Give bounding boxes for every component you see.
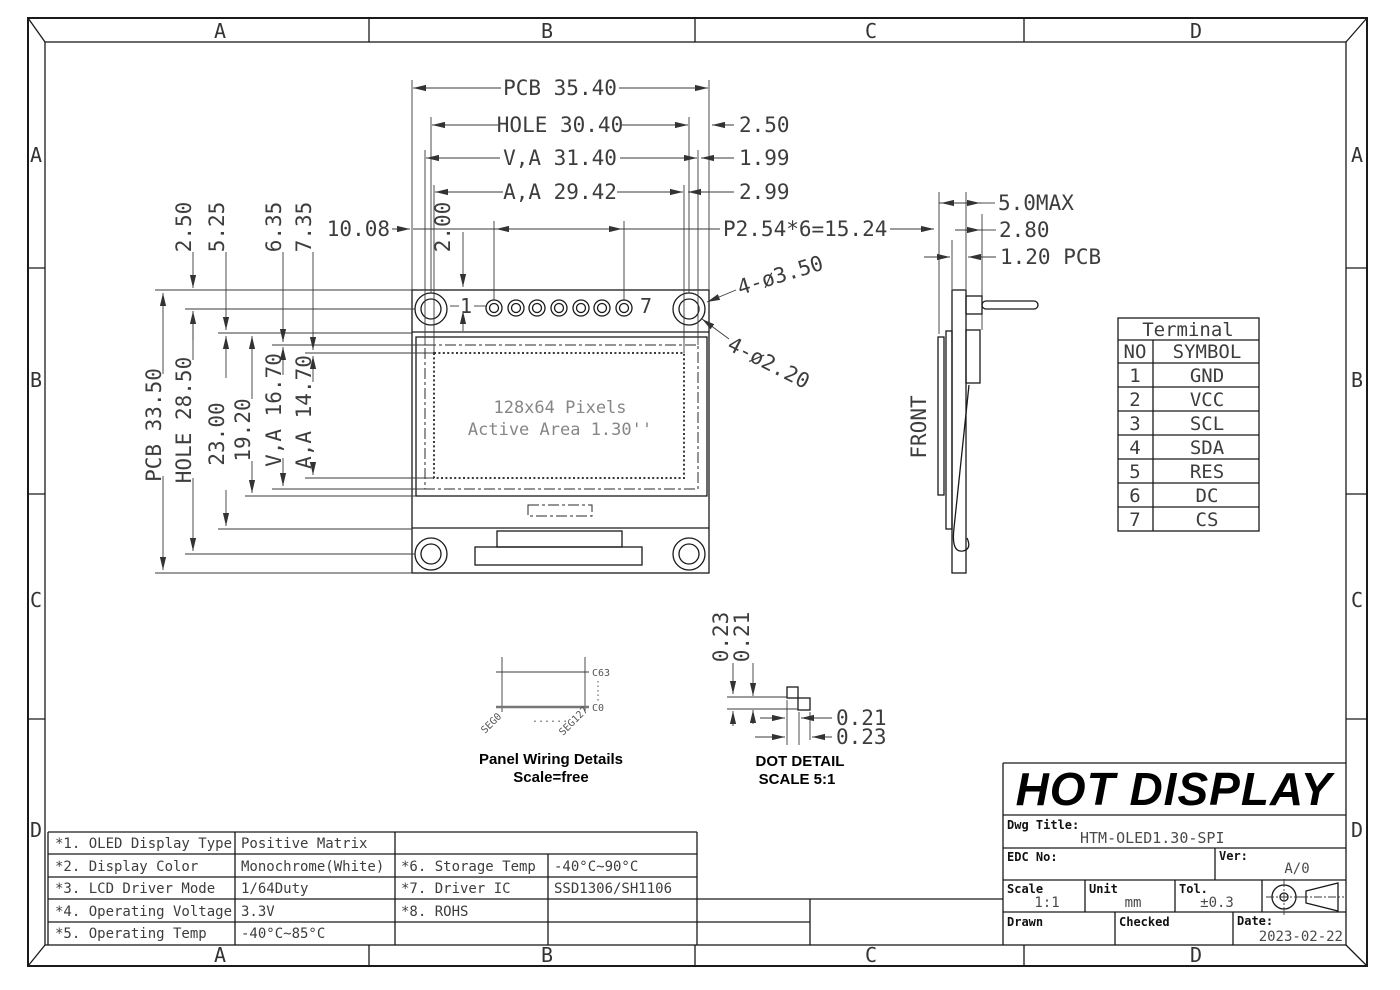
dim-19-20: 19.20 <box>231 398 255 461</box>
terminal-col-no: NO <box>1124 341 1147 363</box>
side-pin <box>982 301 1038 309</box>
dim-pitch: P2.54*6=15.24 <box>723 217 887 241</box>
front-view: 128x64 Pixels Active Area 1.30'' 1 7 <box>412 290 709 573</box>
scale-label: Scale <box>1007 882 1043 896</box>
svg-text:CS: CS <box>1196 509 1219 531</box>
dim-edge-2-99: 2.99 <box>739 180 790 204</box>
zone-left-a: A <box>30 143 42 167</box>
svg-text:4: 4 <box>1129 437 1140 459</box>
dim-2-50-left: 2.50 <box>172 202 196 253</box>
panel-wiring-scale: Scale=free <box>513 769 588 786</box>
dot-detail-scale: SCALE 5:1 <box>759 771 836 788</box>
dim-1-20-pcb: 1.20 PCB <box>1000 245 1101 269</box>
svg-text:3: 3 <box>1129 413 1140 435</box>
dim-hole-width: HOLE 30.40 <box>497 113 623 137</box>
svg-text:3.3V: 3.3V <box>241 904 275 920</box>
svg-text:*8. ROHS: *8. ROHS <box>401 904 468 920</box>
zone-top-d: D <box>1190 19 1202 43</box>
dim-hole-height: HOLE 28.50 <box>172 357 196 483</box>
dim-5-25: 5.25 <box>205 202 229 253</box>
zone-right-d: D <box>1351 818 1363 842</box>
display-text-line2: Active Area 1.30'' <box>468 420 652 440</box>
zone-bottom-b: B <box>541 943 553 967</box>
dim-aa-height: A,A 14.70 <box>292 355 316 469</box>
dot-detail: 0.23 0.21 0.21 0.23 DOT DETAIL SCALE 5:1 <box>709 612 887 788</box>
svg-text:*2. Display Color: *2. Display Color <box>55 859 198 875</box>
svg-text:GND: GND <box>1190 365 1224 387</box>
ver-value: A/0 <box>1284 861 1309 877</box>
svg-text:*7. Driver IC: *7. Driver IC <box>401 881 511 897</box>
svg-text:RES: RES <box>1190 461 1224 483</box>
dim-2-00: 2.00 <box>431 202 455 253</box>
panel-wiring-caption: Panel Wiring Details <box>479 751 623 768</box>
ver-label: Ver: <box>1219 849 1248 863</box>
zone-top-b: B <box>541 19 553 43</box>
svg-text:*6. Storage Temp: *6. Storage Temp <box>401 859 536 875</box>
drawing-sheet: A B C D A B C D A B C D A B C D 128x64 P… <box>0 0 1400 990</box>
dim-pcb-width: PCB 35.40 <box>503 76 617 100</box>
front-label: FRONT <box>907 395 931 459</box>
pin-1-label: 1 <box>460 294 472 318</box>
side-flex-cable <box>953 385 969 551</box>
zone-bottom-d: D <box>1190 943 1202 967</box>
dim-va-height: V,A 16.70 <box>262 353 286 467</box>
callout-4-d3-50: 4-ø3.50 <box>734 251 826 300</box>
svg-text:VCC: VCC <box>1190 389 1224 411</box>
svg-text:-40°C~90°C: -40°C~90°C <box>554 859 638 875</box>
svg-text:SDA: SDA <box>1190 437 1225 459</box>
dot-pixel-2 <box>798 698 810 710</box>
dim-10-08: 10.08 <box>327 217 390 241</box>
scale-value: 1:1 <box>1034 895 1059 911</box>
callout-4-d2-20: 4-ø2.20 <box>724 332 814 394</box>
left-dimensions: 2.50 5.25 6.35 7.35 PCB 33.50 HOLE 28.50… <box>142 202 316 570</box>
svg-text:-40°C~85°C: -40°C~85°C <box>241 926 325 942</box>
zone-bottom-c: C <box>865 943 877 967</box>
svg-text:1: 1 <box>1129 365 1140 387</box>
projection-symbol-icon <box>1266 879 1344 915</box>
svg-text:Monochrome(White): Monochrome(White) <box>241 859 384 875</box>
checked-label: Checked <box>1119 915 1170 929</box>
zone-left-d: D <box>30 818 42 842</box>
dim-5-0-max: 5.0MAX <box>998 191 1074 215</box>
dim-aa-width: A,A 29.42 <box>503 180 617 204</box>
edc-no-label: EDC No: <box>1007 850 1058 864</box>
side-holder <box>966 330 980 383</box>
zone-right-c: C <box>1351 588 1363 612</box>
dot-detail-caption: DOT DETAIL <box>756 753 845 770</box>
dim-7-35: 7.35 <box>292 202 316 253</box>
dim-edge-1-99: 1.99 <box>739 146 790 170</box>
dwg-title-label: Dwg Title: <box>1007 818 1079 832</box>
sheet-border: A B C D A B C D A B C D A B C D <box>28 18 1367 967</box>
side-glass-front <box>938 337 944 495</box>
zone-left-b: B <box>30 368 42 392</box>
svg-text:6: 6 <box>1129 485 1140 507</box>
label-c0: C0 <box>592 703 604 714</box>
label-seg0: SEG0 <box>479 711 504 736</box>
zone-top-a: A <box>214 19 226 43</box>
date-value: 2023-02-22 <box>1259 929 1343 945</box>
dim-dot-v-0-21: 0.21 <box>730 612 754 663</box>
side-glass-back <box>946 331 952 529</box>
engineering-drawing: A B C D A B C D A B C D A B C D 128x64 P… <box>0 0 1400 990</box>
dim-dot-h-0-23: 0.23 <box>836 725 887 749</box>
dim-23-00: 23.00 <box>205 402 229 465</box>
top-dimensions: PCB 35.40 HOLE 30.40 V,A 31.40 A,A 29.42… <box>327 76 934 331</box>
connector-lower <box>475 547 642 565</box>
svg-text:5: 5 <box>1129 461 1140 483</box>
zone-top-c: C <box>865 19 877 43</box>
tol-value: ±0.3 <box>1200 895 1234 911</box>
label-c63: C63 <box>592 668 610 679</box>
pin-holes <box>486 300 632 316</box>
svg-text:Positive Matrix: Positive Matrix <box>241 836 367 852</box>
side-pin-base <box>966 296 982 314</box>
dot-pixel-1 <box>787 687 798 698</box>
dim-2-80: 2.80 <box>999 218 1050 242</box>
svg-text:7: 7 <box>1129 509 1140 531</box>
zone-bottom-a: A <box>214 943 226 967</box>
display-text-line1: 128x64 Pixels <box>493 398 626 418</box>
svg-text:SSD1306/SH1106: SSD1306/SH1106 <box>554 881 672 897</box>
svg-text:1/64Duty: 1/64Duty <box>241 881 308 897</box>
zone-right-a: A <box>1351 143 1363 167</box>
unit-label: Unit <box>1089 882 1118 896</box>
hole-callouts: 4-ø3.50 4-ø2.20 <box>702 251 826 394</box>
dim-6-35: 6.35 <box>262 202 286 253</box>
drawn-label: Drawn <box>1007 915 1043 929</box>
terminal-table: Terminal NO SYMBOL 1GND 2VCC 3SCL 4SDA 5… <box>1118 318 1259 531</box>
svg-text:SCL: SCL <box>1190 413 1224 435</box>
slot <box>528 505 592 516</box>
company-logo: HOT DISPLAY <box>1016 763 1336 815</box>
dwg-title-value: HTM-OLED1.30-SPI <box>1080 829 1225 847</box>
bottom-strip <box>697 899 1003 945</box>
svg-text:*4. Operating Voltage: *4. Operating Voltage <box>55 904 232 920</box>
date-label: Date: <box>1237 914 1273 928</box>
dim-edge-2-50: 2.50 <box>739 113 790 137</box>
spec-table: *1. OLED Display TypePositive Matrix *2.… <box>48 832 697 945</box>
svg-text:*5. Operating Temp: *5. Operating Temp <box>55 926 207 942</box>
panel-wiring-details: C63 C0 SEG0 SEG127 ...... Panel Wiring D… <box>479 657 623 786</box>
svg-text:2: 2 <box>1129 389 1140 411</box>
zone-right-b: B <box>1351 368 1363 392</box>
title-block: HOT DISPLAY Dwg Title: HTM-OLED1.30-SPI … <box>1003 763 1346 945</box>
terminal-rows: 1GND 2VCC 3SCL 4SDA 5RES 6DC 7CS <box>1129 365 1224 531</box>
dim-pcb-height: PCB 33.50 <box>142 368 166 482</box>
connector-upper <box>497 531 622 547</box>
unit-value: mm <box>1125 895 1142 911</box>
svg-text:DC: DC <box>1196 485 1219 507</box>
tol-label: Tol. <box>1179 882 1208 896</box>
dim-va-width: V,A 31.40 <box>503 146 617 170</box>
zone-left-c: C <box>30 588 42 612</box>
svg-text:*1. OLED Display Type: *1. OLED Display Type <box>55 836 232 852</box>
label-seg-dots: ...... <box>532 714 568 725</box>
spec-rows: *1. OLED Display TypePositive Matrix *2.… <box>55 836 672 942</box>
side-view: FRONT 5.0MAX 2.80 1.20 PCB <box>907 191 1101 573</box>
terminal-col-symbol: SYMBOL <box>1173 341 1242 363</box>
terminal-title: Terminal <box>1142 319 1234 341</box>
pin-7-label: 7 <box>640 294 652 318</box>
svg-text:*3. LCD Driver Mode: *3. LCD Driver Mode <box>55 881 215 897</box>
